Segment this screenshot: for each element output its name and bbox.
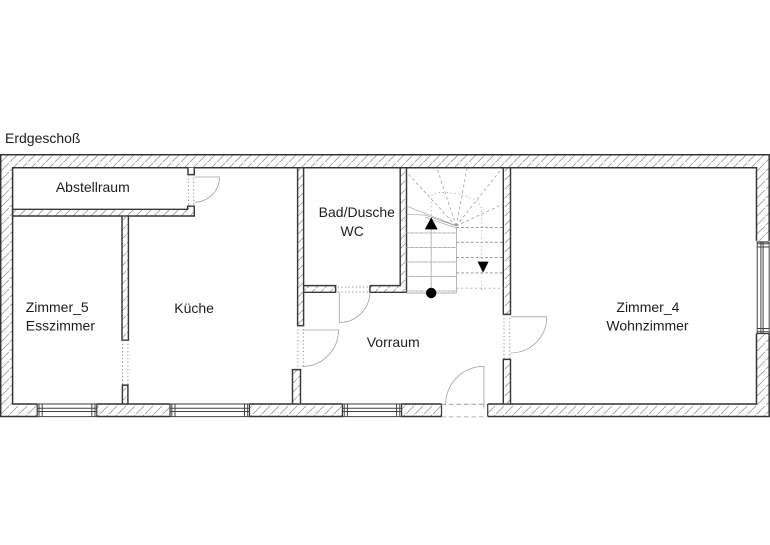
svg-text:Erdgeschoß: Erdgeschoß [5, 130, 80, 146]
svg-text:Küche: Küche [174, 300, 214, 316]
svg-text:Vorraum: Vorraum [367, 334, 420, 350]
svg-text:Bad/Dusche: Bad/Dusche [319, 204, 395, 220]
svg-text:Abstellraum: Abstellraum [56, 179, 130, 195]
svg-text:Esszimmer: Esszimmer [26, 318, 96, 334]
svg-text:Zimmer_4: Zimmer_4 [616, 299, 679, 315]
svg-text:Zimmer_5: Zimmer_5 [26, 299, 89, 315]
svg-text:WC: WC [341, 223, 364, 239]
svg-text:Wohnzimmer: Wohnzimmer [606, 318, 689, 334]
